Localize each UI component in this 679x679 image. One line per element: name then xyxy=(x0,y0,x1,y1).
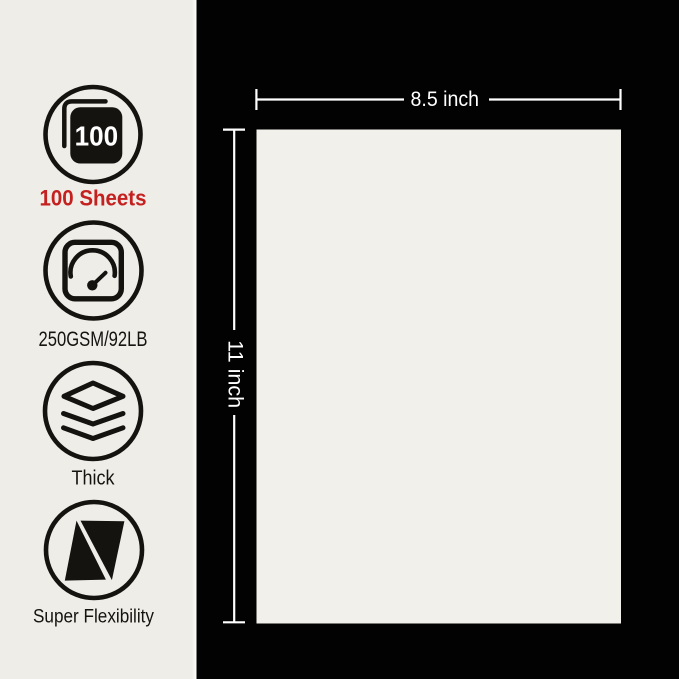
svg-text:100 Sheets: 100 Sheets xyxy=(40,186,147,211)
svg-text:100: 100 xyxy=(75,120,119,151)
svg-text:8.5 inch: 8.5 inch xyxy=(411,88,480,111)
svg-text:Super Flexibility: Super Flexibility xyxy=(33,607,154,628)
svg-text:11 inch: 11 inch xyxy=(224,340,247,408)
svg-text:250GSM/92LB: 250GSM/92LB xyxy=(39,328,148,351)
svg-text:Thick: Thick xyxy=(72,467,116,490)
